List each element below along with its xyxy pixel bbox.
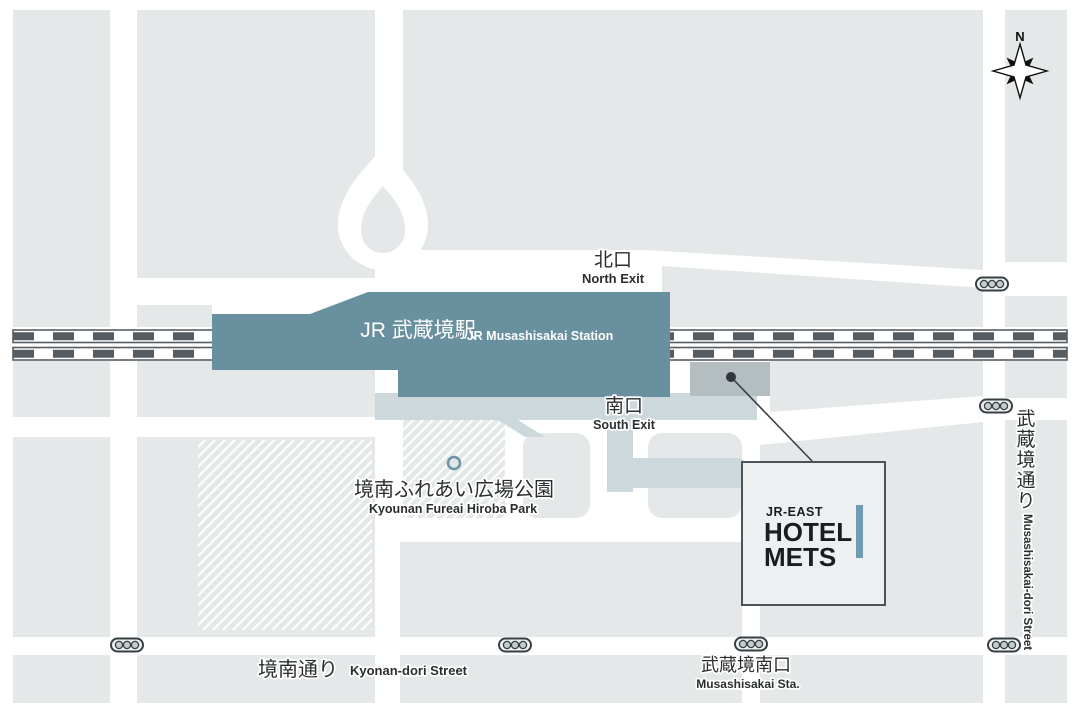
traffic-light-icon <box>735 638 767 651</box>
city-block <box>403 10 983 270</box>
hotel-location-dot <box>726 372 736 382</box>
south-exit-plaza <box>375 393 757 420</box>
city-block <box>13 360 110 417</box>
musashisakai-dori-label-en: Musashisakai-dori Street <box>1021 514 1033 650</box>
access-map: JR 武蔵境駅 JR Musashisakai Station 北口 North… <box>0 0 1080 717</box>
city-block <box>13 10 110 330</box>
hotel-logo-accent-bar <box>856 505 863 558</box>
city-block <box>1005 296 1067 329</box>
city-block <box>1005 655 1067 703</box>
musashisakai-dori-label-ja: 武蔵境通り <box>1016 408 1035 512</box>
traffic-light-icon <box>111 639 143 652</box>
city-block <box>13 437 110 637</box>
station-name-en: JR Musashisakai Station <box>467 329 614 343</box>
south-exit-label-en: South Exit <box>593 418 656 432</box>
musashisakai-south-gate-label-ja: 武蔵境南口 <box>701 655 791 675</box>
kyonan-street-label-ja: 境南通り <box>258 658 338 681</box>
park-area-hatched <box>198 440 372 630</box>
traffic-light-icon <box>976 278 1008 291</box>
city-block <box>1005 360 1067 398</box>
city-block <box>400 542 742 637</box>
hotel-name-line2: METS <box>764 542 836 572</box>
park-label-ja: 境南ふれあい広場公園 <box>354 478 554 501</box>
compass-north-label: N <box>1015 29 1024 44</box>
city-block <box>13 655 110 703</box>
north-exit-label-ja: 北口 <box>594 249 632 271</box>
traffic-light-icon <box>980 400 1012 413</box>
city-block <box>137 10 375 278</box>
city-block <box>137 305 212 329</box>
north-exit-label-en: North Exit <box>582 271 645 286</box>
city-block <box>1005 10 1067 262</box>
city-block <box>137 655 375 703</box>
map-canvas: JR 武蔵境駅 JR Musashisakai Station 北口 North… <box>0 0 1080 717</box>
hotel-label-box: JR-EAST HOTEL METS <box>742 462 885 605</box>
musashisakai-south-gate-label-en: Musashisakai Sta. <box>696 677 799 691</box>
park-marker <box>448 457 460 469</box>
city-block <box>1005 420 1067 637</box>
kyonan-street-label-en: Kyonan-dori Street <box>350 663 468 678</box>
traffic-light-icon <box>499 639 531 652</box>
park-label-en: Kyounan Fureai Hiroba Park <box>369 502 537 516</box>
south-exit-label-ja: 南口 <box>605 395 643 417</box>
traffic-light-icon <box>988 639 1020 652</box>
plaza-walkway <box>607 458 747 488</box>
station-name-ja: JR 武蔵境駅 <box>360 319 476 342</box>
